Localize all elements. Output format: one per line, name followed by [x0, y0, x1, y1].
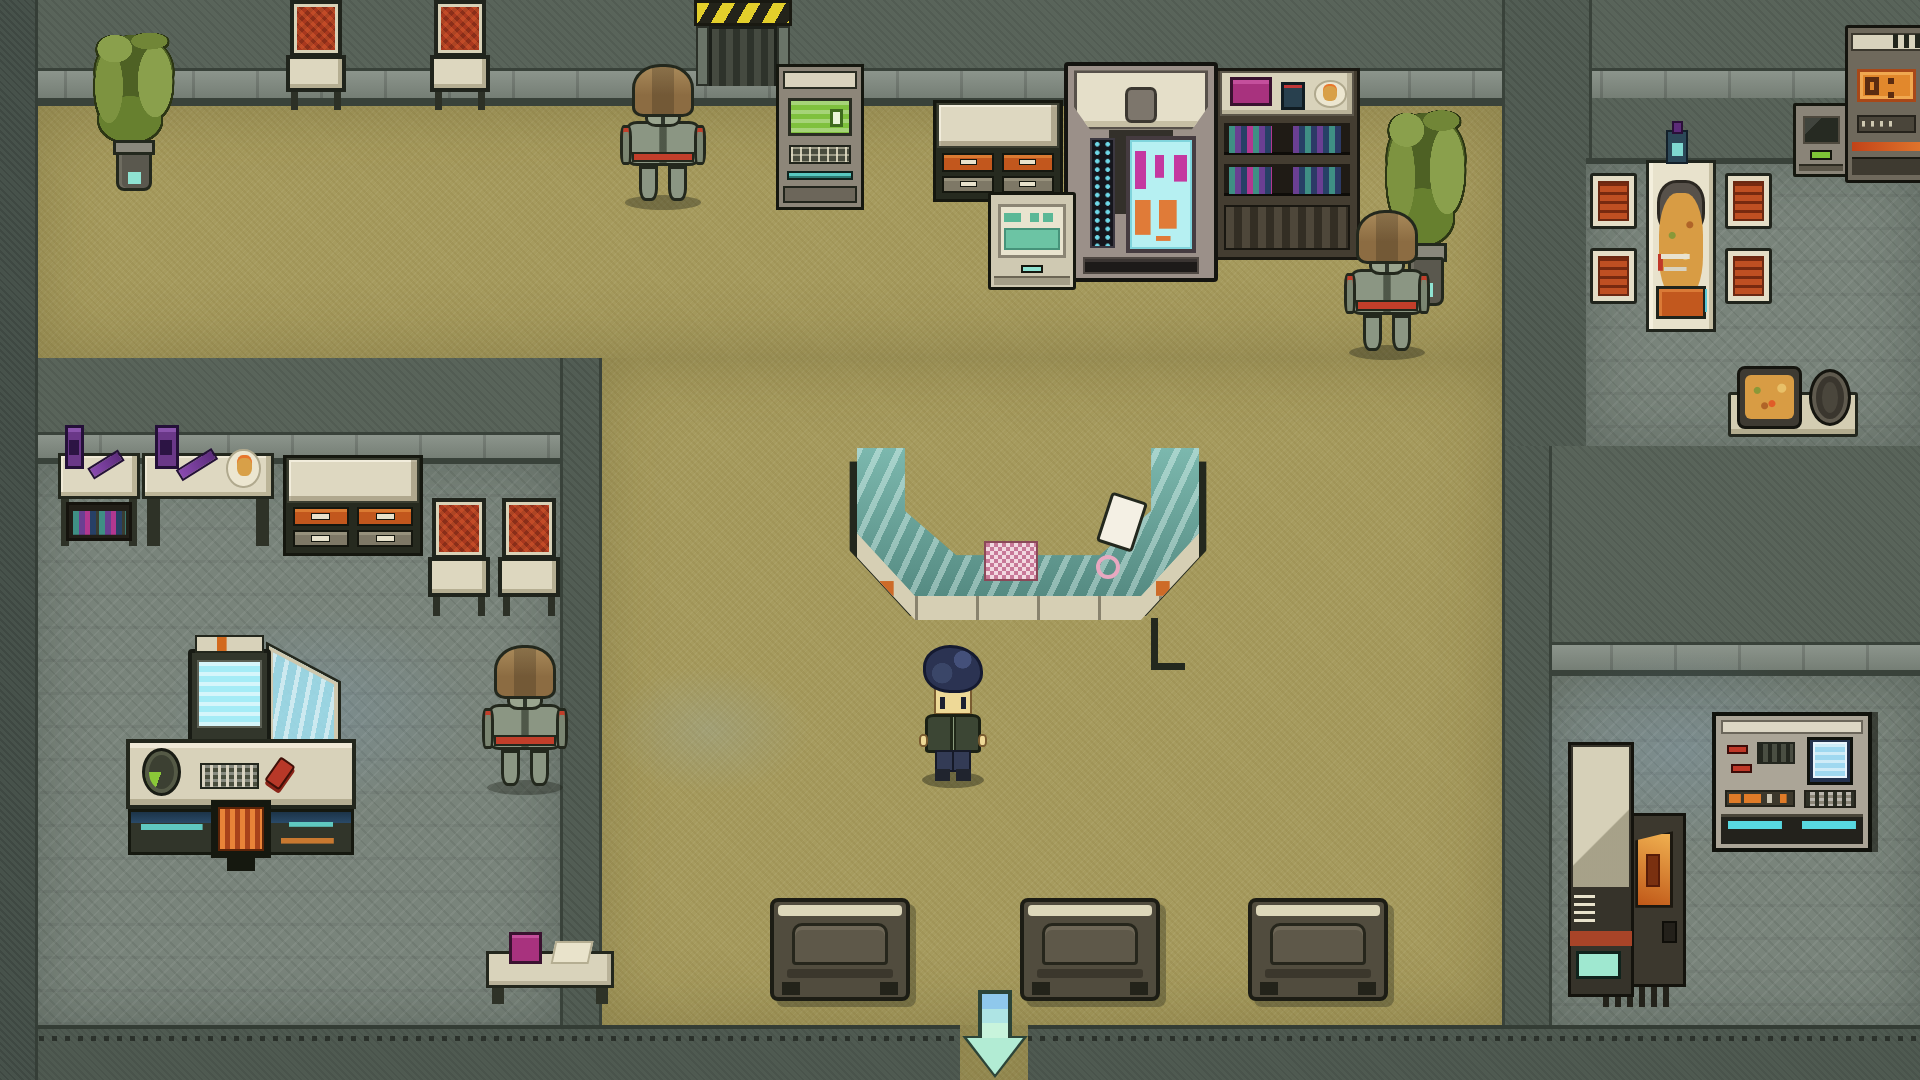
- player-shadow: [922, 772, 984, 788]
- robot-leg: [530, 750, 549, 786]
- shelf-row: [1224, 123, 1350, 155]
- chair-left-2: [498, 498, 560, 616]
- drawer-handle: [1019, 181, 1036, 188]
- bench-rail: [1037, 969, 1143, 979]
- tray-chopstick: [1705, 289, 1708, 312]
- bookshelf-base: [1224, 205, 1350, 250]
- robot-leg: [1363, 315, 1382, 351]
- robot-arm: [1418, 273, 1430, 314]
- food-tray: [1728, 366, 1858, 438]
- terminal-screen-line: [1043, 213, 1053, 221]
- bench-3: [1248, 898, 1388, 1001]
- robot-arm: [482, 708, 494, 749]
- chair-leg: [291, 92, 298, 110]
- atm-cap: [783, 71, 857, 89]
- bottom-right-room-left-wall: [1502, 446, 1552, 1080]
- atm-slot: [787, 171, 853, 181]
- robot-arm: [620, 125, 632, 164]
- screen-glyph-dots: [1888, 78, 1894, 84]
- chair-back: [432, 498, 487, 559]
- chair-leg: [503, 597, 510, 616]
- dining-table-set: [1590, 130, 1772, 345]
- kiosk-vents: [1574, 895, 1595, 926]
- table-tray: [1656, 286, 1707, 319]
- monitor-cap: [195, 635, 264, 653]
- robot-leg: [668, 166, 687, 201]
- console-under-glow: [1721, 814, 1864, 844]
- chair-seat: [428, 557, 490, 597]
- vending-dispenser-slot: [1083, 257, 1200, 274]
- terminal-base: [994, 276, 1069, 285]
- desk-left-1: [58, 440, 140, 550]
- drawer-handle: [960, 181, 977, 188]
- bench-foot: [880, 982, 898, 995]
- drawer-handle: [960, 159, 977, 166]
- machine-vents: [1893, 34, 1920, 48]
- chair-leg: [548, 597, 555, 616]
- robot-leg: [501, 750, 520, 786]
- drawer-handle: [311, 535, 330, 542]
- workstation-keyboard: [200, 763, 260, 789]
- drawer-handle: [376, 513, 395, 520]
- corner-terminal[interactable]: [1793, 103, 1849, 177]
- bench-foot: [1032, 982, 1050, 995]
- desk-leg: [147, 499, 160, 545]
- terminal-screen-line: [1030, 213, 1038, 221]
- console-key-block: [1757, 742, 1795, 763]
- kiosk-screen: [1576, 951, 1621, 979]
- bench-foot: [782, 982, 800, 995]
- corner-machine[interactable]: [1845, 25, 1920, 183]
- screen-glyph-o: [1865, 77, 1879, 95]
- counter-cable: [1151, 618, 1185, 670]
- dining-chair: [1725, 173, 1772, 229]
- bench-highlight: [1256, 905, 1380, 916]
- player-hair: [923, 645, 982, 693]
- player-character[interactable]: [916, 642, 990, 788]
- drawer-handle: [376, 535, 395, 542]
- atm-machine[interactable]: [776, 64, 864, 210]
- player-eye: [940, 697, 945, 709]
- exit-arrow[interactable]: [962, 990, 1028, 1078]
- service-counter[interactable]: [857, 448, 1199, 633]
- machine-panel: [1857, 115, 1916, 133]
- shelf-book: [1281, 82, 1305, 110]
- robot-shadow: [1349, 345, 1425, 360]
- player-hand: [978, 734, 987, 747]
- player-eye: [961, 697, 966, 709]
- left-room-top-wall: [35, 358, 596, 432]
- kiosk-button: [1662, 921, 1676, 944]
- monitor-screen: [197, 660, 261, 728]
- atm-keypad: [789, 145, 851, 163]
- bench-foot: [1130, 982, 1148, 995]
- terminal-button: [1810, 150, 1832, 160]
- chair-leg: [478, 597, 485, 616]
- left-edge-wall: [0, 0, 38, 1080]
- chair-leg: [435, 92, 442, 110]
- chair-cushion: [1733, 256, 1764, 296]
- vending-products-top: [1135, 151, 1187, 189]
- bench-cushion: [1270, 923, 1365, 965]
- table-leg: [596, 988, 608, 1004]
- radar-dial: [142, 748, 181, 796]
- chair-back: [502, 498, 557, 559]
- drawer-handle: [311, 513, 330, 520]
- bottle-label: [1672, 143, 1683, 156]
- shelf-scone: [1323, 86, 1337, 101]
- console-lever: [1727, 745, 1748, 754]
- robot-belt: [494, 735, 556, 746]
- kiosk-panel: [1573, 747, 1630, 887]
- shelf-box: [1230, 77, 1272, 107]
- chair-seat: [498, 557, 560, 597]
- canister-label: [69, 440, 79, 455]
- bench-highlight: [778, 905, 902, 916]
- chair-seat: [286, 55, 346, 92]
- bench-2: [1020, 898, 1160, 1001]
- chair-top-1: [286, 0, 346, 110]
- table-paper: [550, 941, 593, 964]
- bookshelf: [1214, 68, 1360, 260]
- terminal-screen-line: [1004, 213, 1020, 221]
- lobby-dining-divider-wall: [1502, 0, 1592, 446]
- console-labels: [1725, 790, 1795, 807]
- robot-shadow: [625, 195, 701, 210]
- side-table: [486, 932, 614, 1004]
- robot-guard-left[interactable]: [482, 645, 568, 795]
- shelf-row: [1224, 164, 1350, 196]
- bench-cushion: [792, 923, 887, 965]
- table-box: [509, 932, 542, 964]
- terminal-screen: [1803, 116, 1840, 145]
- right-mid-wall: [1502, 446, 1920, 642]
- robot-backpack: [632, 64, 694, 117]
- bench-1: [770, 898, 910, 1001]
- desk-undershelf-books: [66, 502, 132, 542]
- player-shoe: [956, 769, 971, 781]
- bench-rail: [787, 969, 893, 979]
- robot-arm: [556, 708, 568, 749]
- plant-pot-light: [128, 172, 140, 184]
- chair-cushion: [1598, 256, 1629, 296]
- terminal-base: [1799, 164, 1843, 171]
- bottle-cap: [1672, 121, 1683, 134]
- door-shutter: [709, 26, 778, 86]
- console-keypad: [1804, 790, 1856, 808]
- cabinet-top: [937, 103, 1059, 148]
- robot-guard-right[interactable]: [1344, 210, 1430, 360]
- arrow-down-icon: [982, 994, 1008, 1043]
- robot-arm: [1344, 273, 1356, 314]
- machine-base: [1852, 157, 1920, 175]
- machine-stripe: [1852, 142, 1920, 151]
- chair-top-2: [430, 0, 490, 110]
- hazard-stripes: [694, 0, 792, 26]
- plate-food: [1659, 193, 1703, 299]
- table-leg: [492, 988, 504, 1004]
- chair-leg: [433, 597, 440, 616]
- canister-label: [160, 440, 172, 455]
- dining-chair: [1590, 248, 1637, 304]
- cabinet-left-room: [283, 455, 423, 556]
- workstation-pedestal: [227, 858, 255, 871]
- robot-guard-top[interactable]: [620, 64, 706, 210]
- vending-products-bottom: [1135, 200, 1187, 241]
- dining-chair: [1725, 248, 1772, 304]
- chair-cushion: [1733, 181, 1764, 221]
- drawer-front: [218, 807, 264, 851]
- desk-left-2: [142, 440, 274, 550]
- terminal-screen: [1004, 228, 1060, 250]
- desk-leg: [256, 499, 269, 545]
- terminal-button: [1021, 265, 1044, 273]
- console-monitor-screen: [1813, 742, 1846, 778]
- game-viewport[interactable]: [0, 0, 1920, 1080]
- player-shoe: [935, 769, 950, 781]
- books-group: [1229, 167, 1272, 194]
- robot-backpack: [494, 645, 556, 699]
- control-console[interactable]: [1712, 712, 1872, 852]
- plant-foliage: [86, 26, 182, 152]
- bench-foot: [1358, 982, 1376, 995]
- computer-workstation[interactable]: [126, 642, 356, 862]
- counter-checker-mat: [984, 541, 1039, 582]
- chair-cushion: [1598, 181, 1629, 221]
- chair-left-1: [428, 498, 490, 616]
- drawer-handle: [1019, 159, 1036, 166]
- dish-food: [1745, 375, 1794, 420]
- player-jacket: [925, 714, 981, 753]
- chair-back: [434, 0, 487, 57]
- vending-display: [1126, 136, 1196, 253]
- cabinet-top: [287, 458, 418, 503]
- chair-seat: [430, 55, 490, 92]
- bench-cushion: [1042, 923, 1137, 965]
- vending-badge: [1125, 87, 1157, 123]
- chair-leg: [334, 92, 341, 110]
- print-terminal[interactable]: [988, 192, 1076, 290]
- chair-back: [290, 0, 343, 57]
- kiosk-red-band: [1570, 931, 1631, 946]
- atm-screen-glyph: [830, 109, 843, 127]
- books-group: [1293, 126, 1341, 153]
- robot-leg: [639, 166, 658, 201]
- vending-machine[interactable]: [1064, 62, 1218, 282]
- kiosk-screen-glyph: [1646, 854, 1660, 887]
- robot-backpack: [1356, 210, 1418, 264]
- supply-cabinet-top: [933, 100, 1063, 202]
- books-group: [1293, 167, 1341, 194]
- desk-scone: [237, 458, 252, 477]
- robot-arm: [694, 125, 706, 164]
- console-top-strip: [1721, 720, 1864, 735]
- arrow-down-icon: [967, 1038, 1024, 1075]
- robot-leg: [1392, 315, 1411, 351]
- bench-highlight: [1028, 905, 1152, 916]
- vending-button-column: [1090, 138, 1115, 248]
- bench-rail: [1265, 969, 1371, 979]
- atm-base: [783, 186, 857, 203]
- dining-table: [1646, 160, 1715, 332]
- robot-belt: [632, 152, 694, 162]
- robot-shadow: [487, 780, 563, 795]
- chair-leg: [478, 92, 485, 110]
- player-hand: [919, 734, 928, 747]
- potted-plant-top-left: [86, 26, 182, 196]
- dining-chair: [1590, 173, 1637, 229]
- server-kiosk[interactable]: [1568, 742, 1686, 997]
- condiments: [1658, 254, 1698, 271]
- console-lever: [1731, 764, 1752, 773]
- robot-belt: [1356, 300, 1418, 311]
- bench-foot: [1260, 982, 1278, 995]
- books-group: [1229, 126, 1272, 153]
- table-top: [486, 951, 614, 988]
